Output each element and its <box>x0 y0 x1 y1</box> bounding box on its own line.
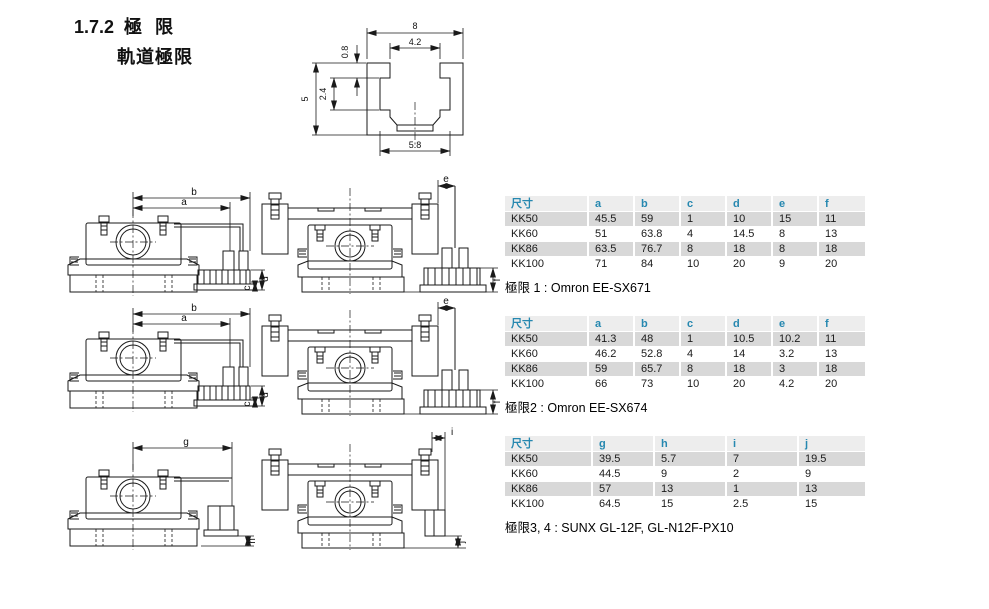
value-cell: 3 <box>772 362 818 377</box>
limit2-caption: 極限2 : Omron EE-SX674 <box>505 397 865 416</box>
row-label: KK60 <box>505 467 592 482</box>
value-cell: 76.7 <box>634 242 680 257</box>
value-cell: 8 <box>772 242 818 257</box>
value-cell: 8 <box>772 227 818 242</box>
value-cell: 51 <box>588 227 634 242</box>
value-cell: 52.8 <box>634 347 680 362</box>
drawing-limit2-side: e f <box>262 292 504 426</box>
value-cell: 10 <box>680 377 726 392</box>
column-header: a <box>588 316 634 332</box>
value-cell: 20 <box>726 257 772 272</box>
drawing-limit1-side: e f <box>262 170 504 304</box>
value-cell: 20 <box>818 377 865 392</box>
column-header: 尺寸 <box>505 436 592 452</box>
dim-label-f: f <box>492 278 503 281</box>
dim-label-e: e <box>443 296 449 307</box>
value-cell: 1 <box>680 212 726 227</box>
column-header: 尺寸 <box>505 196 588 212</box>
value-cell: 45.5 <box>588 212 634 227</box>
value-cell: 18 <box>726 362 772 377</box>
dim-label-b: b <box>191 187 197 198</box>
row-label: KK50 <box>505 332 588 347</box>
value-cell: 15 <box>798 497 865 512</box>
value-cell: 10.2 <box>772 332 818 347</box>
sensor-assembly <box>174 224 256 290</box>
column-header: b <box>634 316 680 332</box>
dim-slot-width: 4.2 <box>409 37 422 47</box>
value-cell: 4 <box>680 347 726 362</box>
dim-label-h: h <box>247 538 258 544</box>
limit34-caption: 極限3, 4 : SUNX GL-12F, GL-N12F-PX10 <box>505 517 865 536</box>
value-cell: 48 <box>634 332 680 347</box>
value-cell: 2.5 <box>726 497 798 512</box>
limit34-dimension-table: 尺寸ghijKK5039.55.7719.5KK6044.5929KK86571… <box>505 436 865 512</box>
value-cell: 63.5 <box>588 242 634 257</box>
value-cell: 15 <box>772 212 818 227</box>
row-label: KK86 <box>505 362 588 377</box>
value-cell: 64.5 <box>592 497 654 512</box>
value-cell: 18 <box>726 242 772 257</box>
value-cell: 1 <box>680 332 726 347</box>
value-cell: 59 <box>634 212 680 227</box>
dim-overall-height: 5 <box>300 96 310 101</box>
dim-label-e: e <box>443 174 449 185</box>
rail-profile <box>367 63 463 148</box>
value-cell: 3.2 <box>772 347 818 362</box>
value-cell: 18 <box>818 362 865 377</box>
sensor-assembly <box>420 308 486 414</box>
table-row: KK5045.5591101511 <box>505 212 865 227</box>
dim-label-f: f <box>492 400 503 403</box>
dim-label-c: c <box>242 402 253 407</box>
catalog-page: 1.7.2極 限 軌道極限 8 4.2 0.8 2.4 5 5.8 <box>0 0 989 609</box>
column-header: i <box>726 436 798 452</box>
cross-section-dimensions: 8 4.2 0.8 2.4 5 5.8 <box>300 21 463 156</box>
value-cell: 11 <box>818 332 865 347</box>
dim-label-c: c <box>242 286 253 291</box>
dim-label-j: j <box>456 541 467 544</box>
limit1-table-block: 尺寸abcdefKK5045.5591101511KK605163.8414.5… <box>505 196 865 296</box>
column-header: e <box>772 196 818 212</box>
row-label: KK60 <box>505 227 588 242</box>
dim-base-width: 5.8 <box>409 140 422 150</box>
table-row: KK8663.576.7818818 <box>505 242 865 257</box>
row-label: KK100 <box>505 497 592 512</box>
row-label: KK100 <box>505 257 588 272</box>
value-cell: 46.2 <box>588 347 634 362</box>
value-cell: 1 <box>726 482 798 497</box>
limit2-dimension-table: 尺寸abcdefKK5041.348110.510.211KK6046.252.… <box>505 316 865 392</box>
value-cell: 39.5 <box>592 452 654 467</box>
column-header: d <box>726 316 772 332</box>
column-header: e <box>772 316 818 332</box>
value-cell: 19.5 <box>798 452 865 467</box>
column-header: f <box>818 196 865 212</box>
section-heading: 1.7.2極 限 <box>74 13 177 39</box>
column-header: f <box>818 316 865 332</box>
value-cell: 71 <box>588 257 634 272</box>
limit1-dimension-table: 尺寸abcdefKK5045.5591101511KK605163.8414.5… <box>505 196 865 272</box>
column-header: c <box>680 196 726 212</box>
dim-label-b: b <box>191 303 197 314</box>
value-cell: 41.3 <box>588 332 634 347</box>
table-row: KK865965.7818318 <box>505 362 865 377</box>
dim-label-a: a <box>181 313 187 324</box>
dimensions: g h <box>133 437 258 546</box>
value-cell: 2 <box>726 467 798 482</box>
column-header: a <box>588 196 634 212</box>
value-cell: 59 <box>588 362 634 377</box>
table-row: KK6044.5929 <box>505 467 865 482</box>
value-cell: 13 <box>798 482 865 497</box>
value-cell: 5.7 <box>654 452 726 467</box>
dimensions: e f <box>402 296 503 414</box>
row-label: KK60 <box>505 347 588 362</box>
value-cell: 13 <box>818 227 865 242</box>
value-cell: 66 <box>588 377 634 392</box>
row-label: KK100 <box>505 377 588 392</box>
dimensions: e f <box>402 174 503 292</box>
dim-lip-depth: 0.8 <box>340 46 350 59</box>
section-title: 極 限 <box>124 17 177 37</box>
column-header: d <box>726 196 772 212</box>
limit1-caption: 極限 1 : Omron EE-SX671 <box>505 277 865 296</box>
value-cell: 20 <box>726 377 772 392</box>
value-cell: 10 <box>726 212 772 227</box>
row-label: KK86 <box>505 482 592 497</box>
drawing-limit2-front: b a d c <box>56 300 268 414</box>
value-cell: 4.2 <box>772 377 818 392</box>
sensor-assembly <box>174 478 238 536</box>
drawing-limit34-front: g h <box>56 434 268 554</box>
table-row: KK5039.55.7719.5 <box>505 452 865 467</box>
value-cell: 65.7 <box>634 362 680 377</box>
limit34-table-block: 尺寸ghijKK5039.55.7719.5KK6044.5929KK86571… <box>505 436 865 536</box>
table-row: KK100667310204.220 <box>505 377 865 392</box>
value-cell: 14.5 <box>726 227 772 242</box>
dim-slot-depth: 2.4 <box>318 88 328 101</box>
value-cell: 9 <box>772 257 818 272</box>
drawing-rail-cross-section: 8 4.2 0.8 2.4 5 5.8 <box>300 12 480 170</box>
column-header: c <box>680 316 726 332</box>
value-cell: 18 <box>818 242 865 257</box>
subsection-title: 軌道極限 <box>117 43 193 69</box>
value-cell: 10.5 <box>726 332 772 347</box>
value-cell: 73 <box>634 377 680 392</box>
dim-label-i: i <box>451 427 453 438</box>
value-cell: 8 <box>680 242 726 257</box>
value-cell: 13 <box>654 482 726 497</box>
table-row: KK10064.5152.515 <box>505 497 865 512</box>
value-cell: 8 <box>680 362 726 377</box>
value-cell: 4 <box>680 227 726 242</box>
dim-label-g: g <box>183 437 189 448</box>
column-header: b <box>634 196 680 212</box>
column-header: g <box>592 436 654 452</box>
value-cell: 14 <box>726 347 772 362</box>
table-row: KK6046.252.84143.213 <box>505 347 865 362</box>
value-cell: 84 <box>634 257 680 272</box>
column-header: h <box>654 436 726 452</box>
value-cell: 44.5 <box>592 467 654 482</box>
section-number: 1.7.2 <box>74 17 114 37</box>
value-cell: 7 <box>726 452 798 467</box>
value-cell: 9 <box>798 467 865 482</box>
value-cell: 13 <box>818 347 865 362</box>
dim-label-a: a <box>181 197 187 208</box>
limit2-table-block: 尺寸abcdefKK5041.348110.510.211KK6046.252.… <box>505 316 865 416</box>
value-cell: 10 <box>680 257 726 272</box>
table-row: KK10071841020920 <box>505 257 865 272</box>
table-row: KK605163.8414.5813 <box>505 227 865 242</box>
dim-overall-width: 8 <box>412 21 417 31</box>
value-cell: 20 <box>818 257 865 272</box>
value-cell: 57 <box>592 482 654 497</box>
sensor-assembly <box>425 510 445 536</box>
value-cell: 11 <box>818 212 865 227</box>
column-header: j <box>798 436 865 452</box>
table-row: KK5041.348110.510.211 <box>505 332 865 347</box>
drawing-limit1-front: b a d c <box>56 184 268 298</box>
value-cell: 15 <box>654 497 726 512</box>
table-row: KK865713113 <box>505 482 865 497</box>
row-label: KK50 <box>505 452 592 467</box>
drawing-limit34-side: i j <box>262 422 508 564</box>
row-label: KK86 <box>505 242 588 257</box>
column-header: 尺寸 <box>505 316 588 332</box>
value-cell: 63.8 <box>634 227 680 242</box>
sensor-assembly <box>174 340 256 406</box>
sensor-assembly <box>420 186 486 292</box>
row-label: KK50 <box>505 212 588 227</box>
value-cell: 9 <box>654 467 726 482</box>
